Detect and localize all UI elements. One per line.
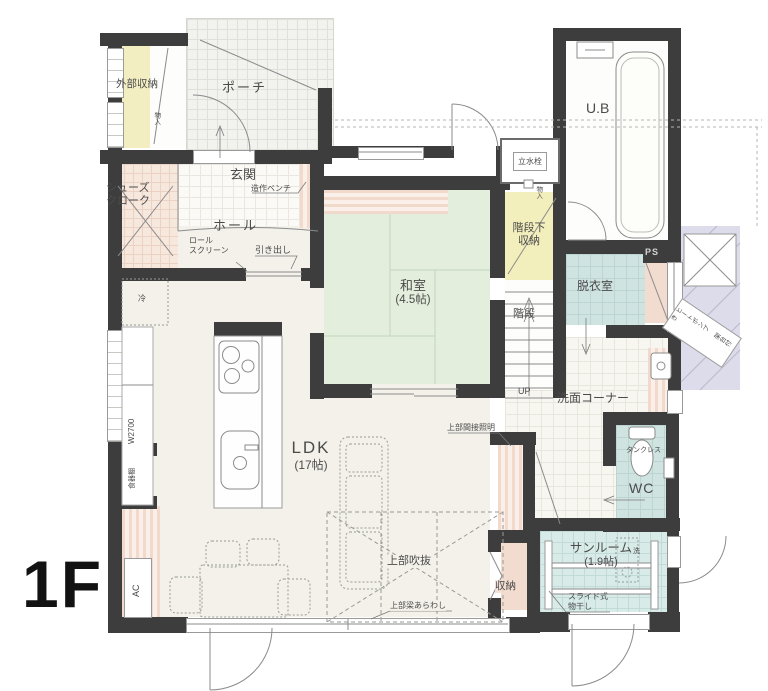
note-mono-ire-1: 物入 <box>152 112 160 125</box>
wall <box>490 432 536 445</box>
note-exposed-beam: 上部梁あらわし <box>390 601 446 611</box>
under-stairs-line2: 収納 <box>506 235 552 248</box>
wall <box>488 530 501 552</box>
washroom-window <box>667 390 683 414</box>
note-fridge: 冷 <box>138 294 146 304</box>
room-label-stairs: 階段 <box>513 308 535 321</box>
wall <box>553 28 681 41</box>
shoes-cloak-floor <box>115 164 178 268</box>
indirect-light-cabinet <box>498 445 523 532</box>
note-roll-screen: ロール スクリーン <box>189 236 229 255</box>
room-label-exterior-storage: 外部収納 <box>116 78 158 91</box>
room-label-entrance: 玄関 <box>230 167 256 183</box>
wall <box>667 564 679 614</box>
under-stairs-line1: 階段下 <box>506 222 552 235</box>
note-indirect-light: 上部間接照明 <box>447 423 495 433</box>
note-counter-width: W2700 <box>127 419 137 444</box>
faucet-box: 立水栓 <box>500 138 560 184</box>
sunroom-size: (1.9帖) <box>548 556 654 569</box>
ldk-name: LDK <box>276 438 346 458</box>
kitchen-window <box>107 330 124 442</box>
faucet-label: 立水栓 <box>513 152 547 171</box>
shoes-cloak-line2: クローク <box>106 195 150 208</box>
roll-screen-line1: ロール <box>189 236 229 246</box>
dressing-closet <box>645 261 669 323</box>
note-mono-ire-2: 物入 <box>534 186 542 199</box>
room-label-storage: 収納 <box>495 580 516 593</box>
roll-screen-line2: スクリーン <box>189 246 229 256</box>
unit-bath-floor <box>566 41 668 240</box>
wall <box>606 325 668 338</box>
room-label-hall: ホール <box>213 218 258 234</box>
room-label-dressing: 脱衣室 <box>577 279 613 293</box>
wall <box>310 150 324 288</box>
note-cupboard: 食器棚 <box>129 468 137 489</box>
wall <box>540 612 570 632</box>
note-ac: AC <box>131 584 142 597</box>
ldk-sliding-window <box>186 618 510 633</box>
room-label-wc: WC <box>629 480 654 497</box>
room-label-shoes-cloak: シューズ クローク <box>106 182 150 208</box>
note-up: UP <box>518 386 531 397</box>
exterior-storage-shelf <box>122 45 150 148</box>
ldk-size: (17帖) <box>276 458 346 472</box>
note-washer: 洗 <box>633 548 640 556</box>
wall <box>488 598 501 620</box>
room-label-wash-corner: 洗面コーナー <box>557 391 629 405</box>
exterior-storage-floor <box>150 45 186 148</box>
wall <box>506 617 540 633</box>
wall <box>112 496 157 509</box>
wall <box>112 443 157 456</box>
wall <box>490 176 505 278</box>
wall <box>108 617 188 633</box>
note-slide-rack: スライド式 物干し <box>568 592 608 611</box>
room-label-under-stairs: 階段下 収納 <box>506 222 552 248</box>
wall <box>553 28 566 243</box>
wall <box>310 384 372 398</box>
wc-floor <box>616 425 666 518</box>
washitsu-closet-strip <box>324 190 448 214</box>
note-bench: 造作ベンチ <box>251 184 291 194</box>
room-label-ldk: LDK (17帖) <box>276 438 346 473</box>
wall <box>553 342 566 398</box>
room-label-unit-bath: U.B <box>586 100 609 117</box>
floor-plan-1f: 1F 外部収納 ポーチ シューズ クローク 玄関 造作ベンチ ホール ロール ス… <box>0 0 768 691</box>
floor-label: 1F <box>22 545 103 624</box>
wall <box>666 412 679 532</box>
wall <box>108 268 246 281</box>
wall <box>523 445 535 532</box>
stairs-floor <box>505 280 553 398</box>
shoes-cloak-line1: シューズ <box>106 182 150 195</box>
room-label-porch: ポーチ <box>222 80 267 96</box>
kitchen-counter-cap <box>214 322 282 337</box>
storage-closet <box>501 543 527 610</box>
window <box>107 102 124 148</box>
sunroom-bottom-opening <box>568 614 650 630</box>
washitsu-window <box>358 147 424 160</box>
wall <box>310 176 504 190</box>
note-drawer: 引き出し <box>255 245 291 256</box>
note-tankless: タンクレス <box>626 447 661 455</box>
wall <box>603 412 616 466</box>
washitsu-name: 和室 <box>378 278 448 294</box>
pipe-space-label: PS <box>645 247 659 257</box>
wall <box>668 28 681 262</box>
wall <box>456 384 505 398</box>
room-label-washitsu: 和室 (4.5帖) <box>378 278 448 307</box>
wall <box>648 612 680 632</box>
wall <box>100 150 196 164</box>
front-door-leaf <box>193 150 255 164</box>
wall <box>553 254 566 342</box>
wall <box>318 88 332 152</box>
washitsu-size: (4.5帖) <box>378 294 448 308</box>
note-void-above: 上部吹抜 <box>385 555 433 568</box>
wall <box>527 518 680 531</box>
wall <box>100 33 188 46</box>
sunroom-door-leaf <box>667 536 681 568</box>
slide-rack-line2: 物干し <box>568 602 608 612</box>
slide-rack-line1: スライド式 <box>568 592 608 602</box>
